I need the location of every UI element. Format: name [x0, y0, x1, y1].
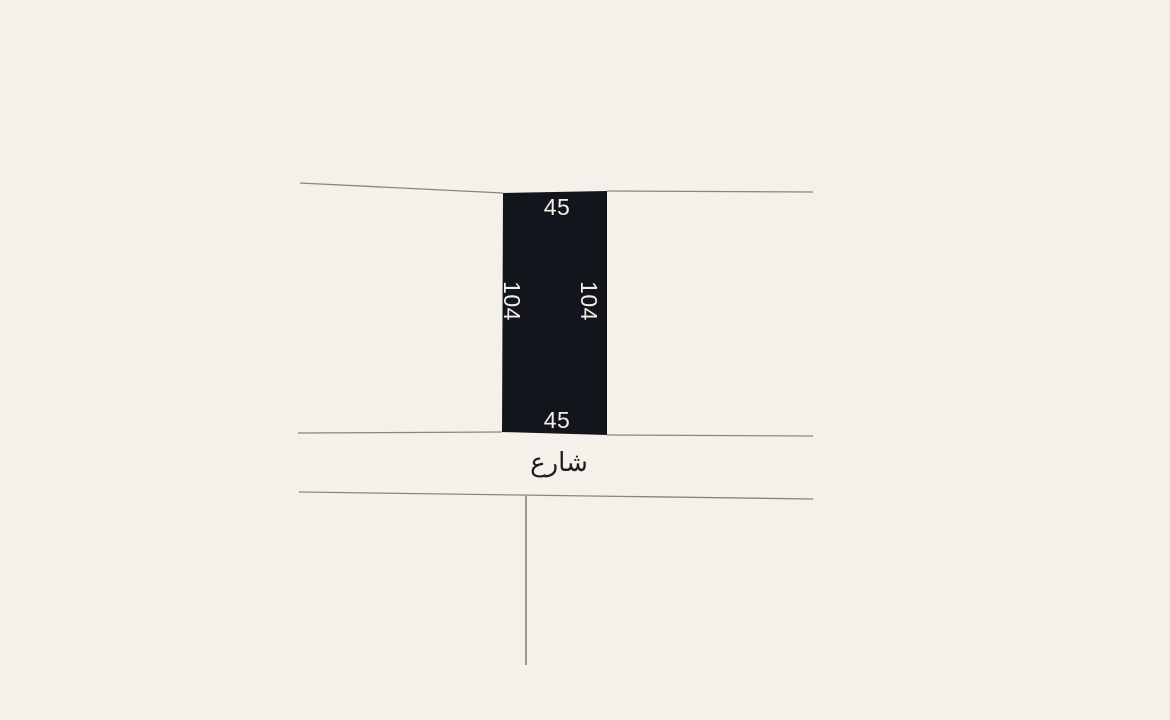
boundary-line-top-left: [300, 183, 503, 193]
street-upper-edge-right: [607, 435, 813, 436]
diagram-canvas: 45 45 104 104 شارع: [0, 0, 1170, 720]
dimension-bottom: 45: [544, 407, 571, 433]
boundary-line-top-right: [607, 191, 813, 192]
street-name-label: شارع: [530, 448, 588, 478]
dimension-top: 45: [544, 194, 571, 220]
plot-diagram: 45 45 104 104 شارع: [0, 0, 1170, 720]
dimension-right: 104: [576, 281, 602, 321]
street-lower-edge: [299, 492, 813, 499]
dimension-left: 104: [499, 281, 525, 321]
street-upper-edge-left: [298, 432, 502, 433]
